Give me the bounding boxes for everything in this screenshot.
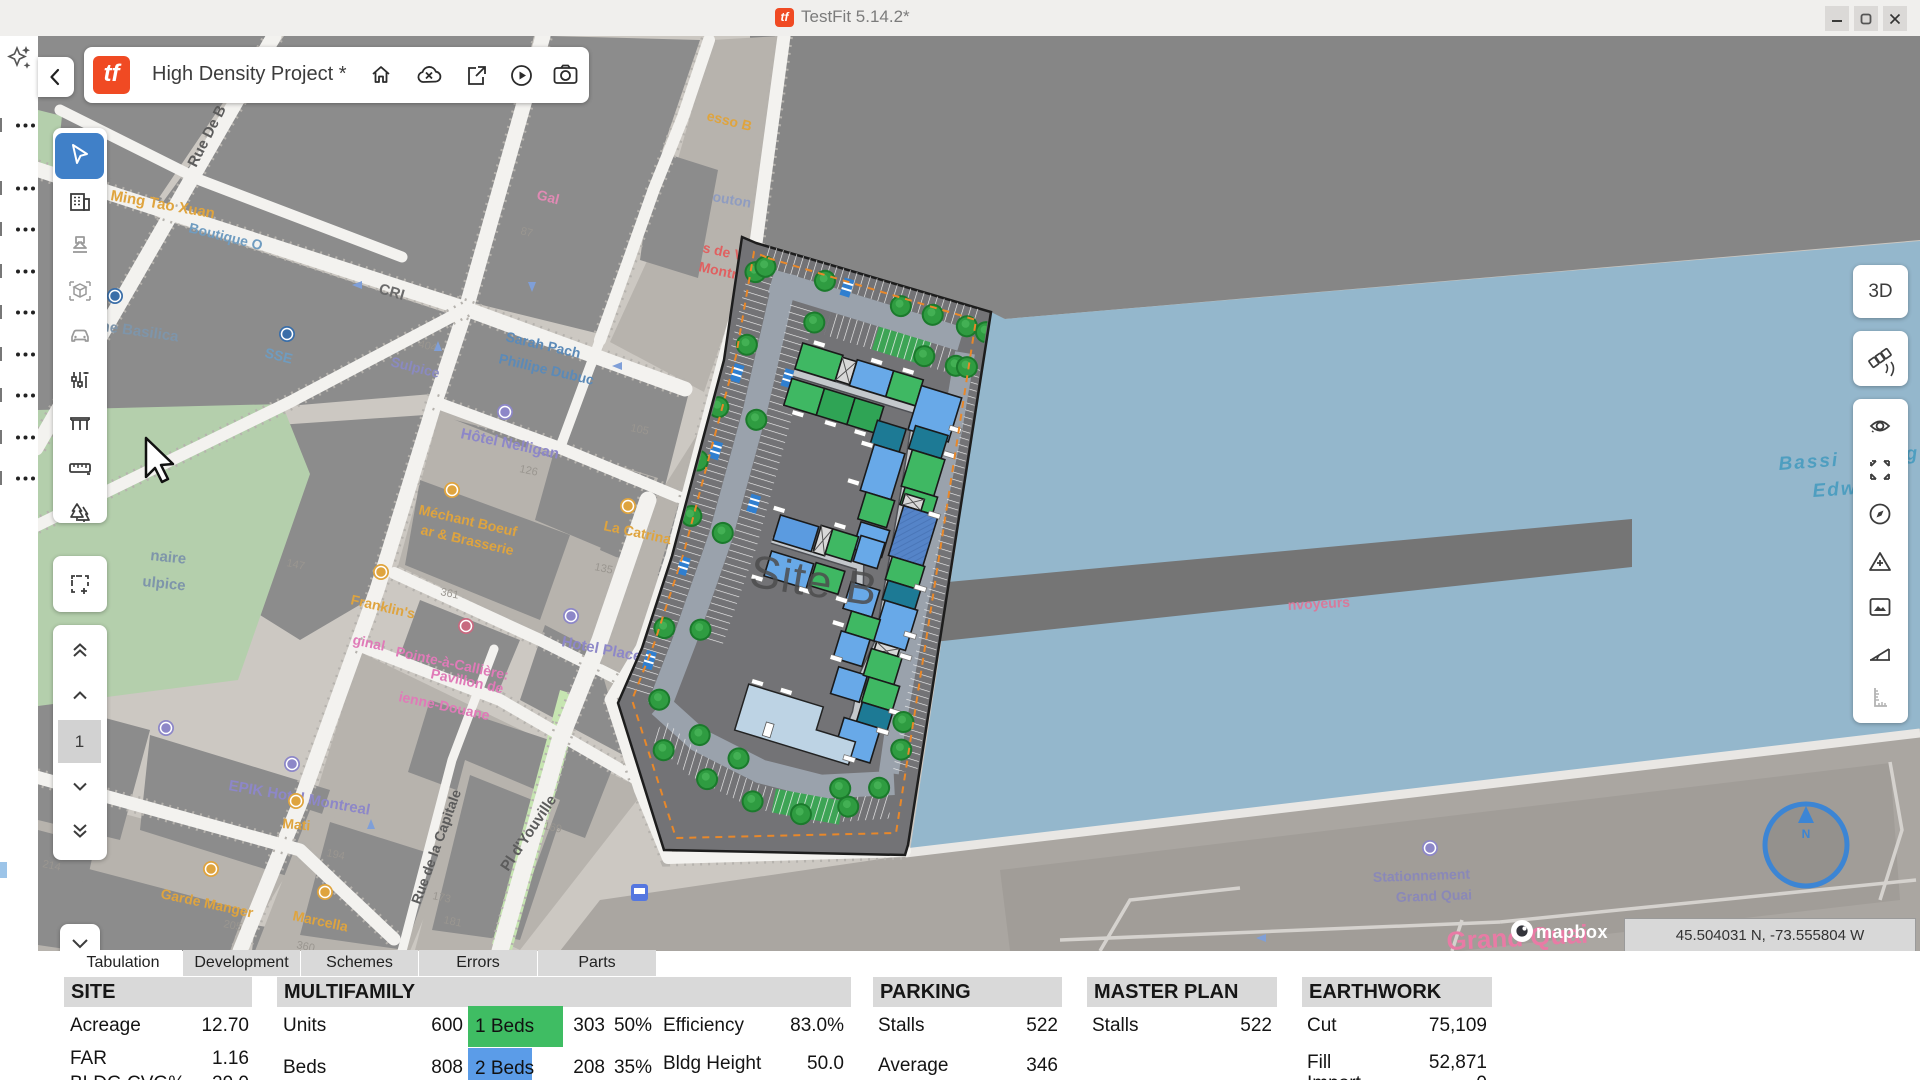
svg-text:Stationnement: Stationnement xyxy=(1373,866,1471,885)
svg-text:Grand Quai: Grand Quai xyxy=(1396,886,1473,905)
svg-text:mapbox: mapbox xyxy=(1536,922,1608,942)
svg-text:Edw: Edw xyxy=(1812,478,1858,502)
svg-text:nvoyeurs: nvoyeurs xyxy=(1287,594,1350,613)
svg-text:Mati: Mati xyxy=(282,815,311,833)
svg-text:Bassi: Bassi xyxy=(1778,450,1840,475)
svg-text:N: N xyxy=(1802,827,1811,841)
